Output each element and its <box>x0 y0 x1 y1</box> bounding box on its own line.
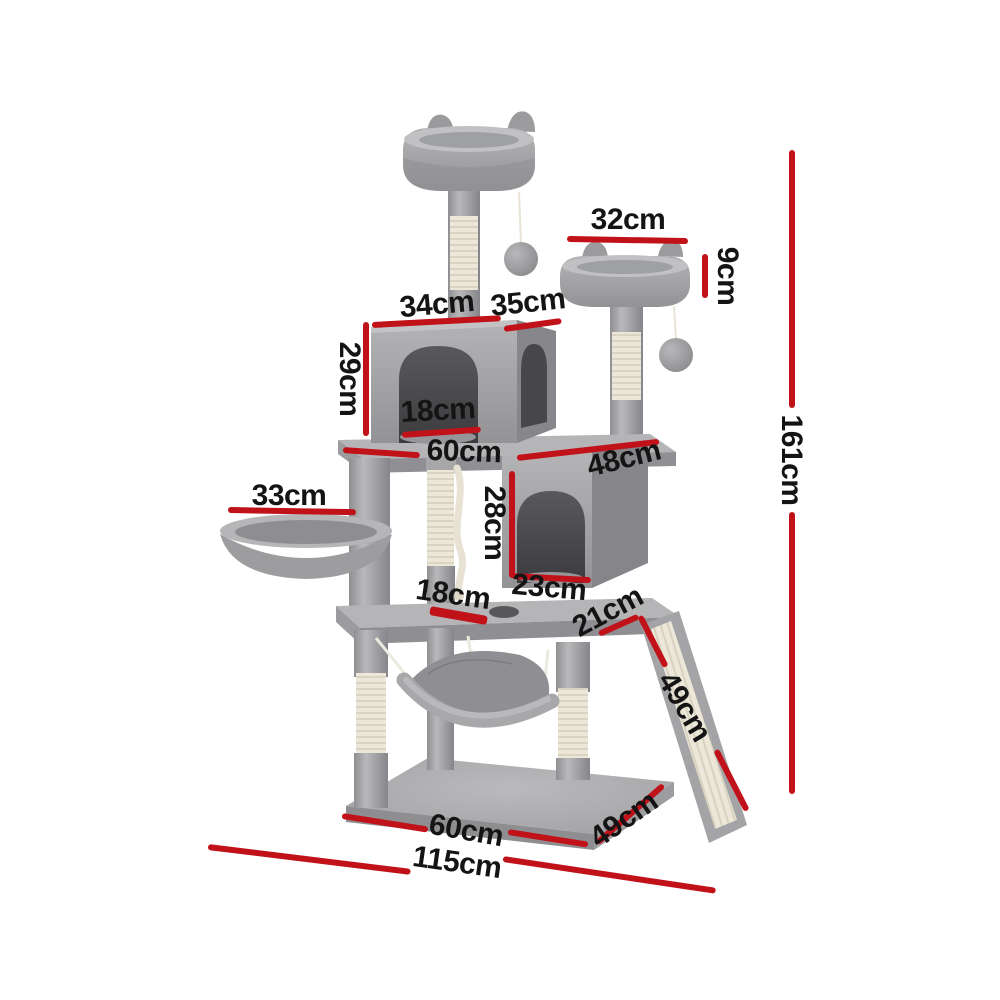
dim-label-top-perch-width: 32cm <box>591 205 666 235</box>
dim-line-side-perch-height <box>702 254 708 298</box>
hanging-ball-toy-2 <box>659 306 693 372</box>
dim-line-overall-height-upper <box>789 150 795 408</box>
dim-label-lower-condo-height: 28cm <box>479 486 509 561</box>
dim-label-mid-platform-width: 60cm <box>426 436 502 469</box>
product-dimension-diagram: 32cm 9cm 34cm 35cm 29cm 18cm 60cm 48cm 3… <box>0 0 1000 1000</box>
dim-label-condo-door-width: 18cm <box>400 394 476 428</box>
side-perch-post <box>610 300 643 452</box>
hanging-ball-toy-1 <box>504 192 538 276</box>
lower-post-left <box>354 630 388 808</box>
dim-label-condo-height: 29cm <box>334 342 364 417</box>
dim-label-side-perch-height: 9cm <box>712 247 742 306</box>
dim-label-condo-top-depth: 35cm <box>489 284 566 322</box>
side-perch <box>560 241 690 307</box>
lower-post-right <box>556 642 590 780</box>
dim-label-condo-top-width: 34cm <box>398 287 475 323</box>
dim-line-overall-height-lower <box>789 512 795 794</box>
dim-label-overall-height: 161cm <box>776 415 806 506</box>
dim-label-basket-width: 33cm <box>252 481 327 511</box>
dim-label-lower-condo-door-width: 23cm <box>510 570 587 606</box>
top-perch <box>403 111 535 191</box>
hammock <box>376 636 552 724</box>
